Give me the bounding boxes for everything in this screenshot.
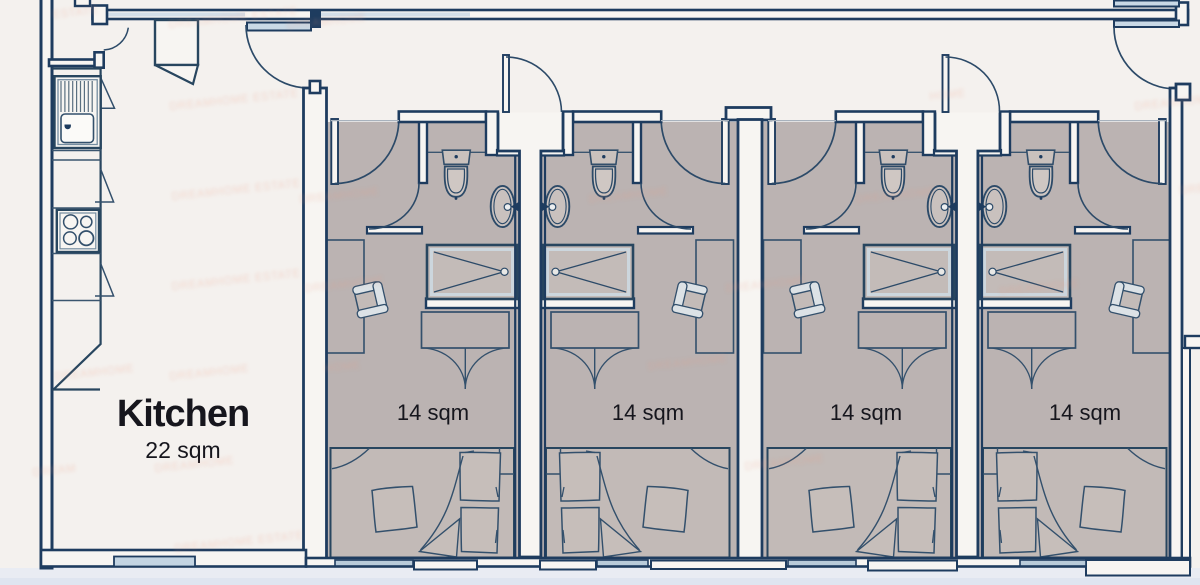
svg-text:14 sqm: 14 sqm — [1049, 400, 1121, 425]
svg-text:14 sqm: 14 sqm — [830, 400, 902, 425]
svg-text:14 sqm: 14 sqm — [397, 400, 469, 425]
svg-text:14 sqm: 14 sqm — [612, 400, 684, 425]
svg-text:Kitchen: Kitchen — [117, 393, 249, 435]
